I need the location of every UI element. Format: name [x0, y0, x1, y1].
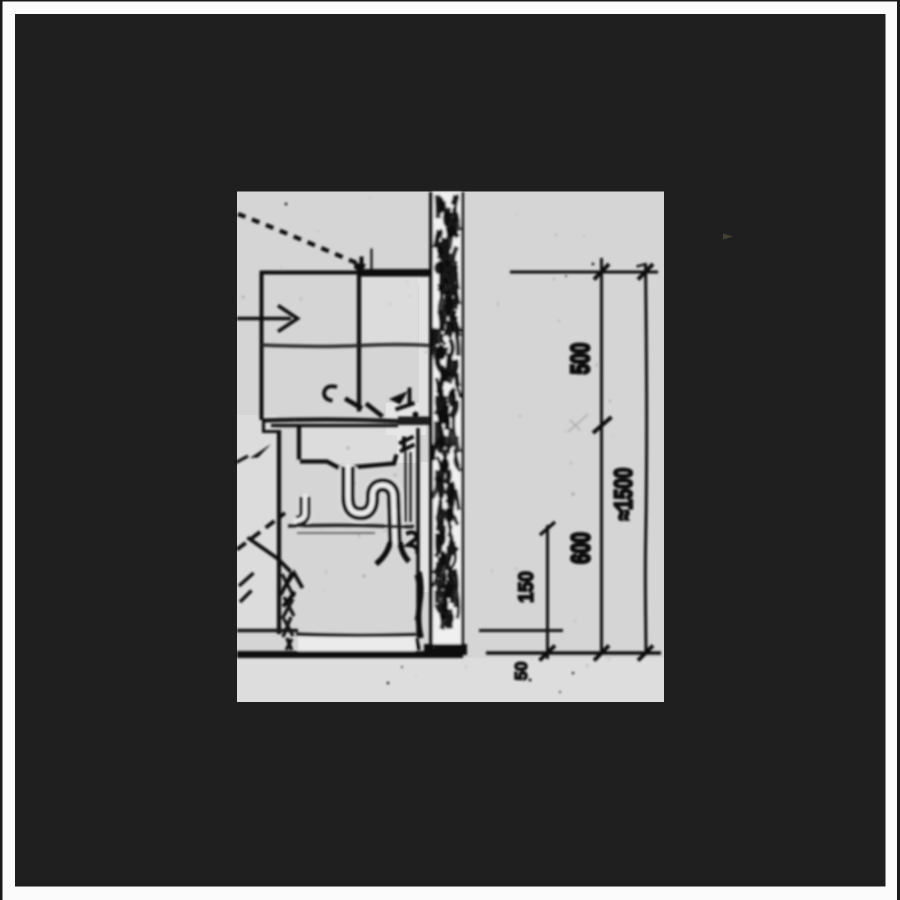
- svg-text:500: 500: [566, 343, 594, 375]
- svg-text:150: 150: [515, 571, 538, 603]
- svg-text:50: 50: [511, 662, 531, 681]
- svg-text:≈1500: ≈1500: [609, 468, 637, 521]
- svg-text:600: 600: [567, 532, 595, 564]
